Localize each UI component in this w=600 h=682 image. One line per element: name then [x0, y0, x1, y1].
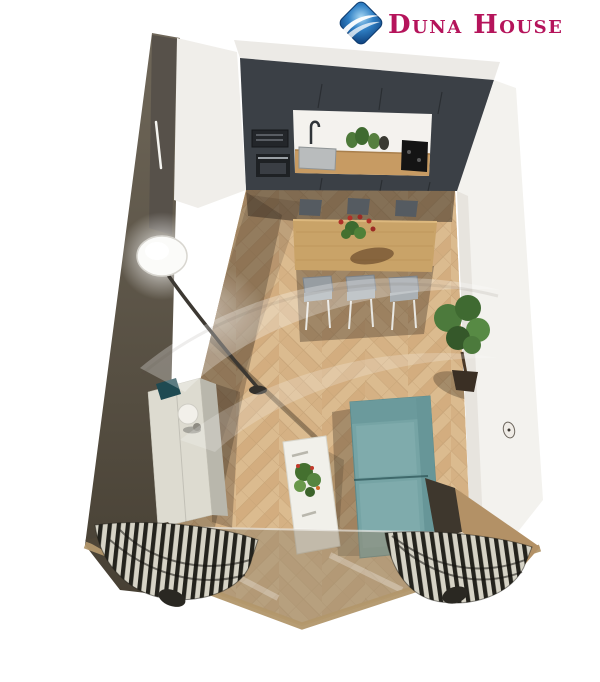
lamp-shade-highlight [145, 242, 169, 260]
tree-pot [452, 370, 478, 392]
dining-chair-far [395, 200, 418, 217]
burner [417, 158, 421, 162]
burner [407, 150, 411, 154]
curtain-right [385, 532, 532, 607]
floorplan-render: Duna House [0, 0, 600, 682]
kitchen-wall-group [234, 40, 500, 191]
logo-diamond-icon [338, 0, 385, 46]
dining-chair-far [299, 199, 322, 216]
kitchen-sink [299, 147, 336, 170]
table-lamp [178, 404, 198, 424]
dining-chair-far [347, 198, 370, 215]
floorplan-render-page: Duna House [0, 0, 600, 682]
sideboard [148, 378, 228, 528]
cooktop [401, 140, 428, 172]
west-wall-lit-face [174, 38, 246, 208]
logo-text: Duna House [388, 10, 563, 40]
oven-window [260, 163, 286, 174]
sofa-cushion [356, 422, 417, 478]
logo: Duna House [338, 0, 564, 46]
microwave [252, 130, 288, 147]
